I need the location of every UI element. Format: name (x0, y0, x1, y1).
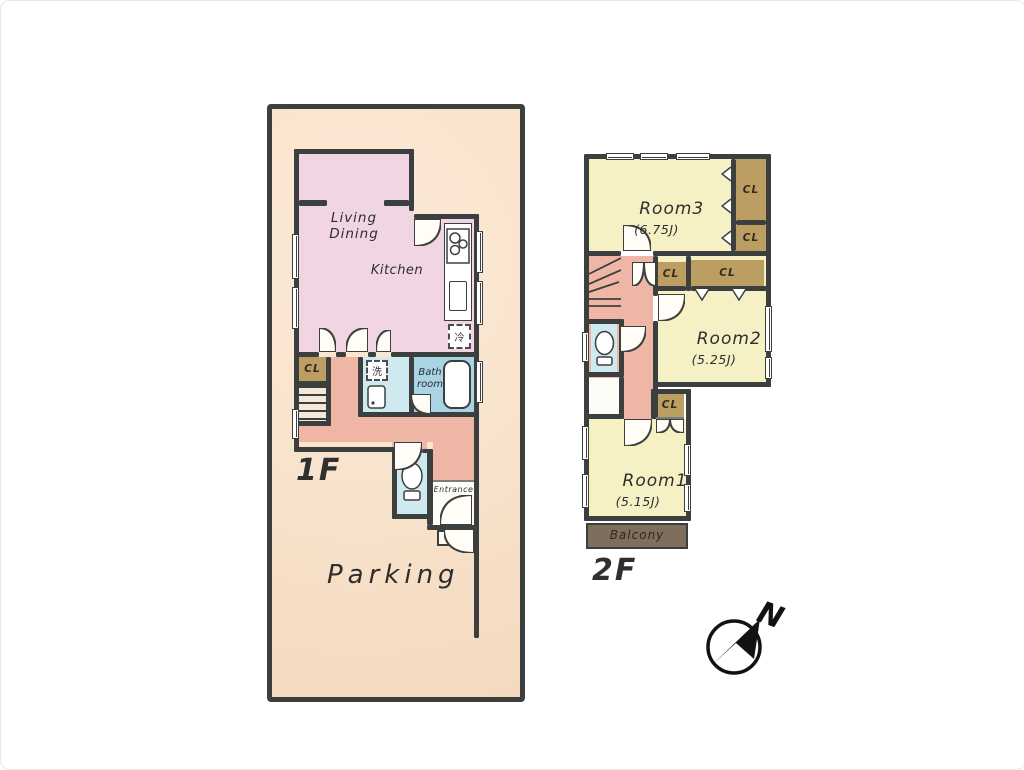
wall-stub (422, 449, 433, 453)
wall (656, 286, 686, 291)
closet-label: CL (736, 225, 766, 251)
wall (326, 386, 331, 426)
closet-label: CL (656, 393, 684, 417)
wall (358, 357, 363, 417)
closet-hall-2f: CL (656, 262, 686, 286)
bifold-closet-room1-left (656, 419, 670, 433)
floor2-label: 2F (592, 554, 637, 589)
bifold-vmark-icon (694, 288, 710, 301)
living-dining-label: LivingDining (312, 211, 396, 242)
window (292, 409, 299, 439)
door-arc-room1 (624, 419, 652, 446)
balcony-label: Balcony (588, 529, 686, 543)
refrigerator-label: 冷 (455, 329, 465, 344)
room3-label: Room3(6.75J) (599, 182, 714, 257)
window (582, 426, 589, 460)
door-arc-living-mid (346, 328, 368, 352)
door-arc-closet-hall-right (644, 262, 656, 286)
wall (766, 154, 771, 387)
wall (294, 447, 397, 452)
closet-room3-bottom: CL (736, 225, 766, 251)
window (292, 287, 299, 329)
closet-1f: CL (299, 357, 326, 381)
window (640, 153, 668, 160)
door-arc-entrance-inner (440, 495, 472, 525)
wall (427, 449, 433, 525)
closet-label: CL (691, 260, 764, 286)
wall-stub (384, 200, 409, 206)
refrigerator-icon: 冷 (448, 324, 471, 349)
door-arc-closet-hall-left (632, 262, 644, 286)
floor2-plan: CL CL CL CL CL Balcony (584, 154, 780, 554)
wall (409, 149, 414, 211)
wall (619, 377, 624, 419)
parking-label: Parking (327, 561, 457, 591)
door-arc-entrance-outer (444, 529, 474, 553)
stairs-1f (299, 386, 326, 421)
kitchen-label: Kitchen (366, 264, 428, 279)
washer-label: 洗 (372, 363, 382, 378)
window (476, 281, 483, 325)
window (765, 306, 772, 352)
wall (584, 319, 624, 324)
stairs-2f (589, 256, 621, 308)
wall (294, 149, 414, 154)
kitchen-sink-icon (449, 281, 467, 311)
floor1-label: 1F (296, 454, 341, 489)
bifold-chevron-icon (721, 166, 732, 182)
room1-label: Room1(5.15J) (592, 454, 684, 529)
wall (474, 214, 479, 638)
wall (584, 372, 624, 377)
washing-machine-icon: 洗 (366, 360, 388, 381)
window (292, 234, 299, 279)
window (476, 231, 483, 273)
door-arc-washroom (376, 330, 391, 352)
door-arc-toilet-1f (394, 442, 422, 470)
window (582, 474, 589, 508)
closet-room3-top: CL (736, 159, 766, 220)
stove-icon (446, 228, 470, 264)
bathtub-icon (443, 360, 471, 409)
wall (294, 421, 331, 426)
door-arc-kitchen (414, 219, 441, 246)
compass-north-icon: N (696, 593, 796, 688)
wall (294, 381, 331, 386)
closet-label: CL (656, 262, 686, 286)
window (765, 357, 772, 379)
bifold-chevron-icon (721, 230, 732, 246)
closet-room1: CL (656, 393, 684, 417)
window (606, 153, 634, 160)
window (582, 332, 589, 362)
storage-2f (589, 378, 619, 414)
wall (336, 352, 346, 357)
bifold-chevron-icon (721, 198, 732, 214)
vanity-sink-icon (367, 385, 386, 409)
wall (736, 220, 766, 225)
door-arc-toilet-2f (620, 326, 646, 352)
entrance-label: Entrance (431, 485, 476, 494)
closet-label: CL (736, 159, 766, 220)
bathroom-label: Bathroom (415, 367, 445, 390)
wall (294, 352, 319, 357)
living-dining-room (299, 154, 409, 352)
door-arc-bathroom (411, 394, 431, 414)
wall (368, 352, 376, 357)
door-arc-living-left (319, 328, 336, 352)
toilet-icon-2f (593, 330, 616, 368)
hallway-entrance-approach (433, 442, 474, 481)
wall-stub (299, 200, 327, 206)
room2-label: Room2(5.25J) (664, 312, 764, 387)
wall (391, 352, 479, 357)
bifold-closet-room1-right (670, 419, 684, 433)
closet-room2-wide: CL (691, 260, 764, 286)
entrance-step-line (433, 480, 474, 482)
floor1-parcel: CL 洗 Bathroom Entrance (267, 104, 525, 702)
window (676, 153, 710, 160)
closet-1f-label: CL (299, 357, 326, 381)
wall (651, 389, 691, 394)
wall (584, 414, 624, 419)
window (476, 361, 483, 403)
bifold-vmark-icon (731, 288, 747, 301)
floorplan-page: CL 洗 Bathroom Entrance (0, 0, 1024, 770)
